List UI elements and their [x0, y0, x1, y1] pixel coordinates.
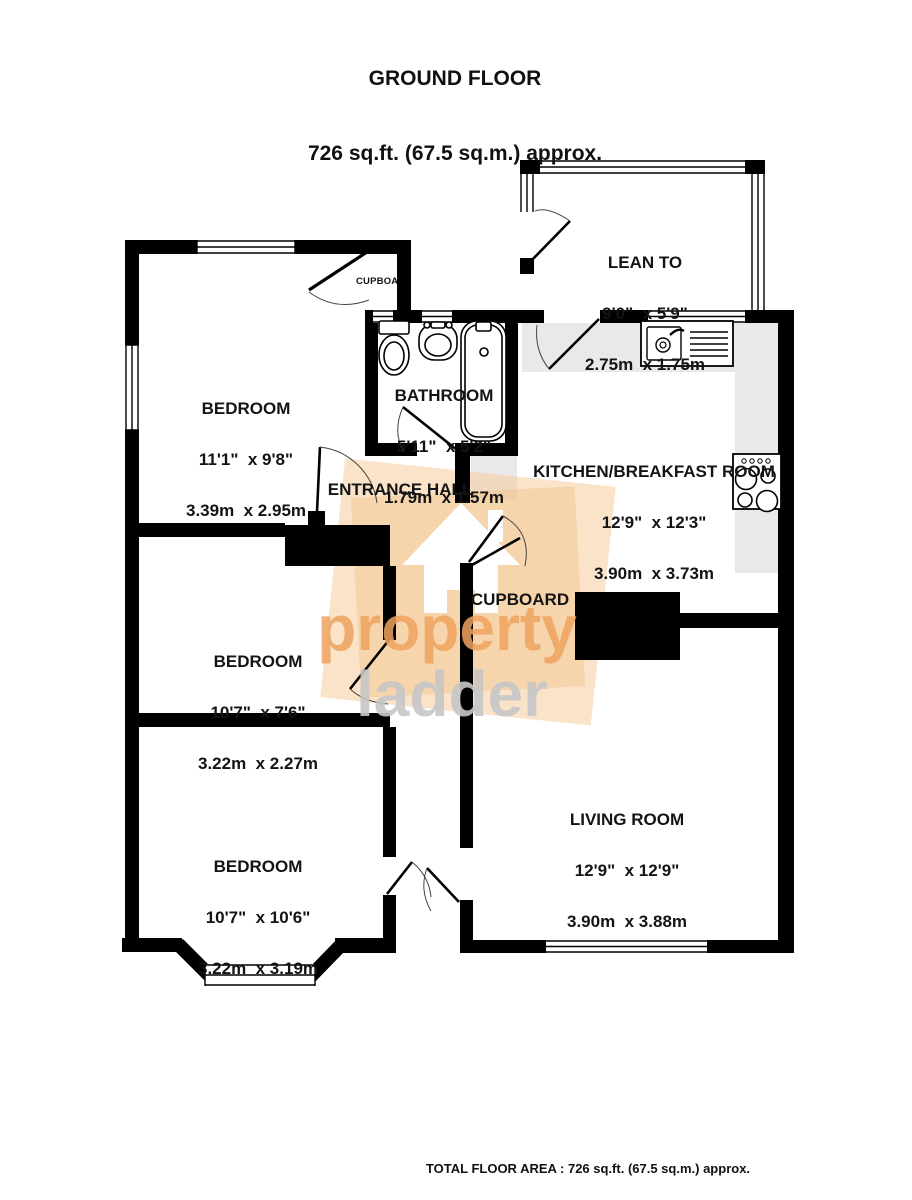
room-name: BEDROOM: [198, 653, 318, 670]
wall: [365, 310, 378, 456]
room-label-living-room: LIVING ROOM 12'9" x 12'9" 3.90m x 3.88m: [567, 777, 687, 964]
door-arc: [309, 292, 369, 305]
room-dims-imperial: 10'7" x 7'6": [198, 704, 318, 721]
wall: [125, 240, 139, 345]
window-bathroom-b: [422, 310, 452, 323]
window-bedroom-top: [197, 240, 295, 254]
wall: [460, 940, 546, 953]
room-label-bedroom-top: BEDROOM 11'1" x 9'8" 3.39m x 2.95m: [186, 366, 306, 553]
room-dims-metric: 3.90m x 3.73m: [533, 565, 775, 582]
room-dims-imperial: 12'9" x 12'3": [533, 514, 775, 531]
room-dims-imperial: 10'7" x 10'6": [198, 909, 318, 926]
wall: [122, 938, 182, 952]
door-leaf-bedroom-bottom: [387, 862, 412, 894]
cupboard-hall-label: CUPBOARD: [471, 590, 569, 610]
wall: [383, 727, 396, 857]
room-label-bathroom: BATHROOM 5'11" x 5'2" 1.79m x 1.57m: [384, 353, 504, 540]
wall: [707, 940, 794, 953]
wall: [397, 240, 411, 310]
door-leaf-bedroom-top: [317, 447, 320, 512]
room-name: BEDROOM: [186, 400, 306, 417]
room-name: BATHROOM: [384, 387, 504, 404]
wall: [383, 895, 396, 953]
room-label-kitchen: KITCHEN/BREAKFAST ROOM 12'9" x 12'3" 3.9…: [533, 429, 775, 616]
entrance-hall-label: ENTRANCE HALL: [328, 480, 473, 500]
room-dims-metric: 3.39m x 2.95m: [186, 502, 306, 519]
wall: [778, 310, 794, 953]
room-dims-metric: 3.22m x 3.19m: [198, 960, 318, 977]
room-name: KITCHEN/BREAKFAST ROOM: [533, 463, 775, 480]
room-dims-imperial: 9'0" x 5'9": [585, 305, 705, 322]
wall: [520, 310, 544, 323]
room-name: LEAN TO: [585, 254, 705, 271]
plan-title: GROUND FLOOR 726 sq.ft. (67.5 sq.m.) app…: [308, 16, 602, 216]
window-bedroom-left: [125, 345, 139, 430]
watermark-ladder: ladder: [356, 658, 548, 730]
door-leaf-living: [427, 868, 459, 902]
room-dims-imperial: 11'1" x 9'8": [186, 451, 306, 468]
footer: TOTAL FLOOR AREA : 726 sq.ft. (67.5 sq.m…: [347, 1124, 828, 1200]
room-dims-imperial: 5'11" x 5'2": [384, 438, 504, 455]
door-leaf-leanto: [530, 221, 570, 262]
wall: [295, 240, 410, 254]
room-label-bedroom-bottom: BEDROOM 10'7" x 10'6" 3.22m x 3.19m: [198, 824, 318, 1011]
room-label-lean-to: LEAN TO 9'0" x 5'9" 2.75m x 1.75m: [585, 220, 705, 407]
wall: [125, 430, 139, 952]
wall: [505, 310, 518, 456]
room-name: BEDROOM: [198, 858, 318, 875]
room-label-bedroom-middle: BEDROOM 10'7" x 7'6" 3.22m x 2.27m: [198, 619, 318, 806]
room-dims-metric: 3.90m x 3.88m: [567, 913, 687, 930]
cupboard-bedroom-label: CUPBOARD: [356, 276, 398, 288]
plan-title-line1: GROUND FLOOR: [308, 66, 602, 91]
plan-title-line2: 726 sq.ft. (67.5 sq.m.) approx.: [308, 141, 602, 166]
wall: [745, 160, 765, 174]
door-jamb: [308, 511, 325, 525]
floorplan-page: property ladder GROUND FLOOR 726 sq.ft. …: [0, 0, 912, 1200]
room-name: LIVING ROOM: [567, 811, 687, 828]
window-leanto-right: [751, 174, 765, 310]
door-arc: [412, 862, 431, 897]
total-floor-area: TOTAL FLOOR AREA : 726 sq.ft. (67.5 sq.m…: [347, 1160, 828, 1177]
room-dims-imperial: 12'9" x 12'9": [567, 862, 687, 879]
room-dims-metric: 2.75m x 1.75m: [585, 356, 705, 373]
room-dims-metric: 3.22m x 2.27m: [198, 755, 318, 772]
